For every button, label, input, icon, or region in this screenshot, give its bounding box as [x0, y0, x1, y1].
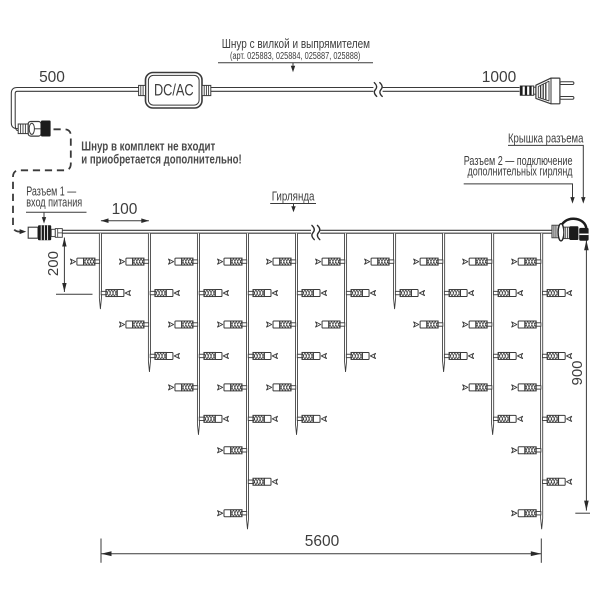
svg-text:и приобретается дополнительно!: и приобретается дополнительно!: [81, 152, 241, 166]
svg-text:Крышка разъема: Крышка разъема: [508, 131, 583, 145]
svg-text:900: 900: [569, 360, 586, 385]
svg-text:дополнительных гирлянд: дополнительных гирлянд: [468, 164, 573, 178]
svg-text:(арт. 025883, 025884, 025887,: (арт. 025883, 025884, 025887, 025888): [230, 51, 360, 62]
svg-text:1000: 1000: [482, 69, 517, 86]
svg-text:Гирлянда: Гирлянда: [272, 189, 315, 203]
svg-text:Шнур с вилкой и выпрямителем: Шнур с вилкой и выпрямителем: [222, 36, 370, 51]
svg-text:вход питания: вход питания: [26, 195, 82, 209]
svg-text:200: 200: [45, 251, 62, 276]
svg-text:Шнур в комплект не входит: Шнур в комплект не входит: [81, 139, 215, 153]
svg-text:100: 100: [112, 201, 138, 218]
svg-text:5600: 5600: [305, 533, 340, 550]
svg-text:500: 500: [39, 69, 65, 86]
svg-text:DC/AC: DC/AC: [154, 82, 194, 100]
